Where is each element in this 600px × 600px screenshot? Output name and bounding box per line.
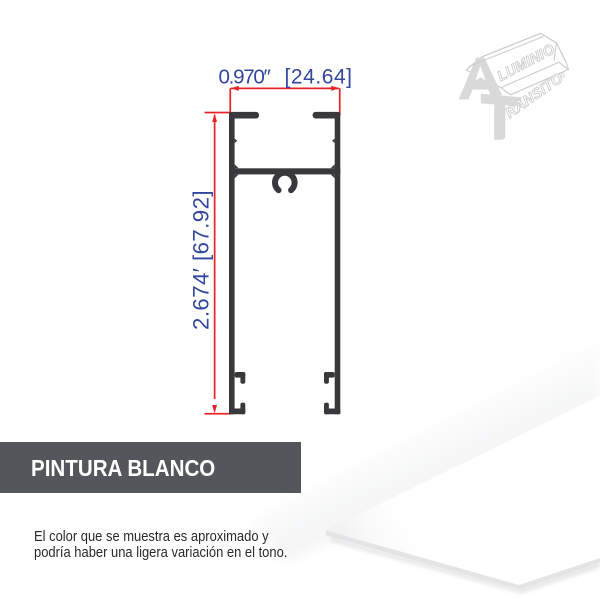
svg-text:[24.64]: [24.64] <box>285 66 353 89</box>
svg-text:0.970″: 0.970″ <box>219 66 271 89</box>
svg-text:2.674′ [67.92]: 2.674′ [67.92] <box>189 190 214 330</box>
